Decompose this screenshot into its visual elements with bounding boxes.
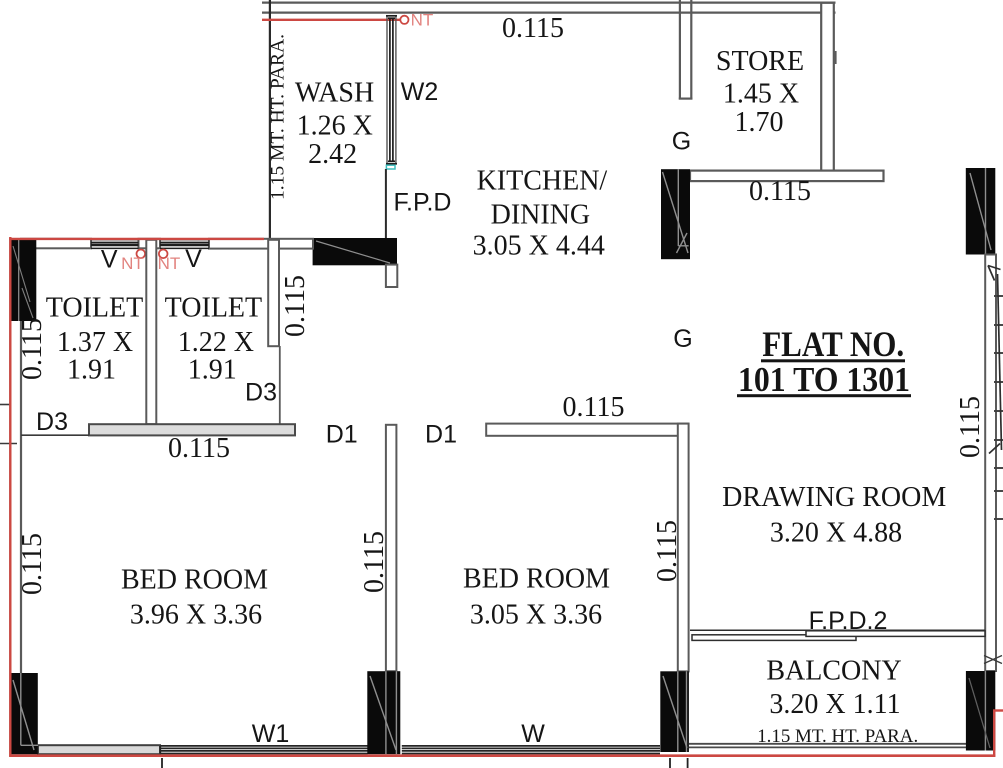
svg-text:0.115: 0.115 — [17, 533, 48, 595]
svg-text:0.115: 0.115 — [749, 176, 811, 207]
svg-text:D3: D3 — [245, 379, 277, 407]
svg-text:W1: W1 — [252, 720, 290, 748]
svg-text:1.45 X: 1.45 X — [723, 79, 799, 110]
svg-text:1.70: 1.70 — [735, 107, 784, 138]
svg-text:0.115: 0.115 — [168, 433, 230, 464]
svg-text:0.115: 0.115 — [280, 275, 311, 337]
svg-text:0.115: 0.115 — [359, 531, 390, 593]
svg-text:G: G — [672, 128, 691, 156]
svg-text:F.P.D.2: F.P.D.2 — [809, 607, 888, 635]
svg-text:DRAWING ROOM: DRAWING ROOM — [722, 482, 946, 513]
svg-text:TOILET: TOILET — [46, 292, 143, 323]
svg-text:0.115: 0.115 — [17, 318, 48, 380]
svg-text:0.115: 0.115 — [563, 392, 625, 423]
svg-text:3.20 X 1.11: 3.20 X 1.11 — [769, 689, 900, 720]
svg-text:STORE: STORE — [716, 46, 804, 77]
svg-text:NT: NT — [158, 254, 181, 273]
svg-text:WASH: WASH — [295, 78, 374, 109]
svg-text:F.P.D: F.P.D — [394, 189, 452, 217]
svg-text:1.91: 1.91 — [188, 355, 237, 386]
svg-text:TOILET: TOILET — [165, 292, 262, 323]
svg-text:BALCONY: BALCONY — [766, 656, 901, 687]
svg-text:0.115: 0.115 — [652, 520, 683, 582]
svg-text:1.15 MT. HT. PARA.: 1.15 MT. HT. PARA. — [757, 726, 918, 747]
svg-text:1.91: 1.91 — [67, 355, 116, 386]
svg-text:101 TO 1301: 101 TO 1301 — [738, 361, 910, 399]
svg-text:FLAT NO.: FLAT NO. — [762, 324, 904, 364]
svg-text:3.05 X 3.36: 3.05 X 3.36 — [470, 600, 602, 631]
svg-text:KITCHEN/: KITCHEN/ — [477, 166, 608, 197]
svg-text:1.22 X: 1.22 X — [178, 327, 254, 358]
svg-text:BED ROOM: BED ROOM — [121, 565, 268, 596]
svg-text:1.15 MT. HT. PARA.: 1.15 MT. HT. PARA. — [267, 34, 288, 200]
svg-text:BED ROOM: BED ROOM — [463, 563, 610, 594]
svg-text:0.115: 0.115 — [955, 396, 986, 458]
svg-text:3.20 X 4.88: 3.20 X 4.88 — [770, 518, 902, 549]
svg-text:V: V — [101, 246, 118, 274]
svg-text:1.26 X: 1.26 X — [297, 110, 373, 141]
svg-text:DINING: DINING — [491, 200, 591, 231]
svg-text:3.05 X 4.44: 3.05 X 4.44 — [473, 231, 605, 262]
svg-text:G: G — [673, 325, 692, 353]
svg-text:NT: NT — [411, 11, 434, 30]
svg-text:V: V — [185, 245, 202, 273]
svg-text:NT: NT — [121, 254, 144, 273]
svg-text:W: W — [521, 720, 545, 748]
svg-text:W2: W2 — [401, 78, 439, 106]
svg-text:1.37 X: 1.37 X — [57, 327, 133, 358]
svg-text:D1: D1 — [425, 421, 457, 449]
svg-text:0.115: 0.115 — [502, 13, 564, 44]
svg-text:D3: D3 — [36, 408, 68, 436]
svg-text:2.42: 2.42 — [308, 139, 357, 170]
svg-text:D1: D1 — [326, 421, 358, 449]
svg-text:3.96 X 3.36: 3.96 X 3.36 — [130, 600, 262, 631]
